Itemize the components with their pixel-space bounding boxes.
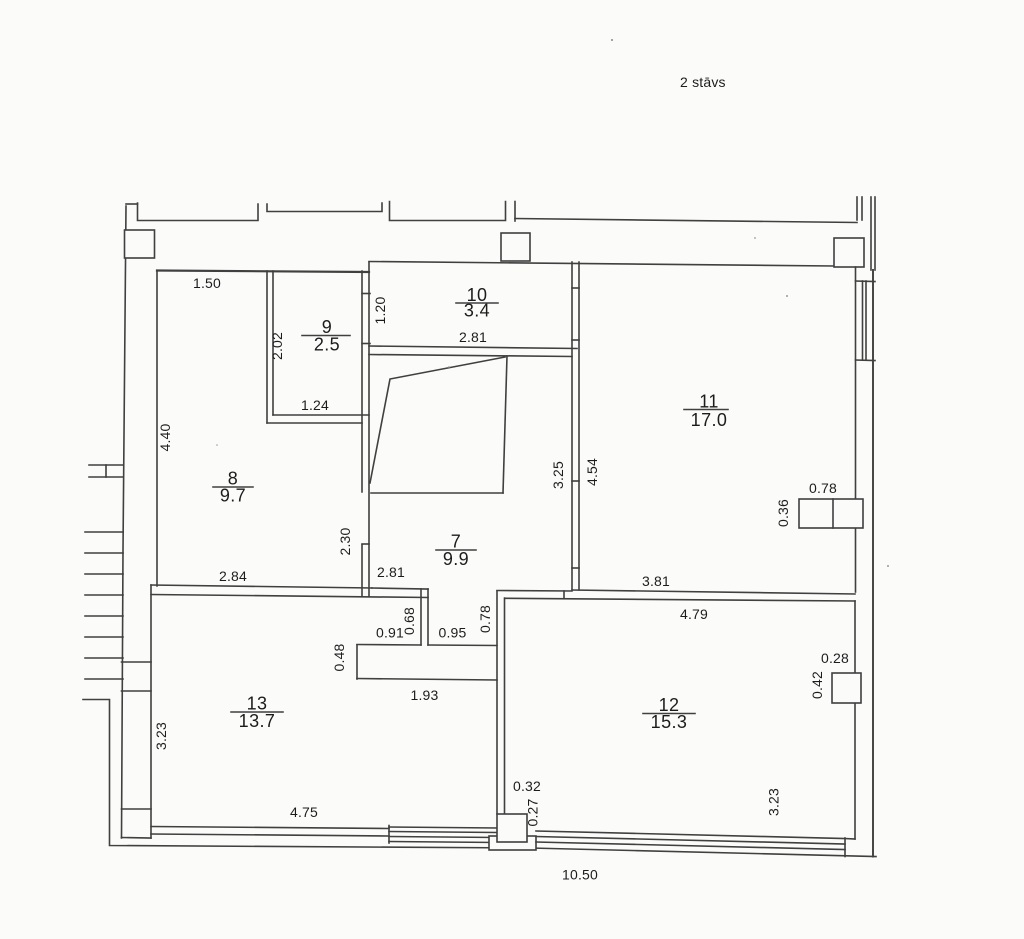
svg-text:0.78: 0.78 <box>477 605 493 633</box>
svg-text:9.9: 9.9 <box>443 549 469 569</box>
svg-text:1.50: 1.50 <box>193 275 221 291</box>
svg-text:2 stāvs: 2 stāvs <box>680 74 726 90</box>
svg-text:2.02: 2.02 <box>269 332 285 360</box>
svg-text:0.42: 0.42 <box>809 671 825 699</box>
svg-text:2.84: 2.84 <box>219 568 247 584</box>
svg-text:3.25: 3.25 <box>550 461 566 489</box>
svg-text:10.50: 10.50 <box>562 867 598 883</box>
svg-text:0.68: 0.68 <box>401 607 417 635</box>
svg-text:0.28: 0.28 <box>821 650 849 666</box>
svg-text:9.7: 9.7 <box>220 486 246 506</box>
svg-text:0.32: 0.32 <box>513 778 541 794</box>
svg-text:3.81: 3.81 <box>642 573 670 589</box>
svg-text:0.91: 0.91 <box>376 625 404 641</box>
svg-text:4.40: 4.40 <box>157 423 173 451</box>
svg-text:1.20: 1.20 <box>372 296 388 324</box>
svg-text:0.95: 0.95 <box>438 625 466 641</box>
svg-text:4.75: 4.75 <box>290 804 318 820</box>
svg-text:1.93: 1.93 <box>410 687 438 703</box>
svg-text:4.54: 4.54 <box>584 458 600 486</box>
svg-text:0.27: 0.27 <box>525 798 541 826</box>
svg-text:0.48: 0.48 <box>331 643 347 671</box>
svg-text:2.30: 2.30 <box>337 527 353 555</box>
svg-text:2.81: 2.81 <box>377 564 405 580</box>
svg-text:13.7: 13.7 <box>239 711 276 731</box>
svg-text:17.0: 17.0 <box>691 410 728 430</box>
svg-text:3.23: 3.23 <box>766 788 782 816</box>
svg-text:0.36: 0.36 <box>775 499 791 527</box>
svg-text:0.78: 0.78 <box>809 480 837 496</box>
svg-text:3.23: 3.23 <box>153 722 169 750</box>
svg-text:1.24: 1.24 <box>301 397 329 413</box>
svg-text:2.5: 2.5 <box>314 335 340 355</box>
svg-text:4.79: 4.79 <box>680 606 708 622</box>
svg-text:2.81: 2.81 <box>459 329 487 345</box>
svg-text:11: 11 <box>699 392 719 412</box>
svg-text:15.3: 15.3 <box>651 712 688 732</box>
